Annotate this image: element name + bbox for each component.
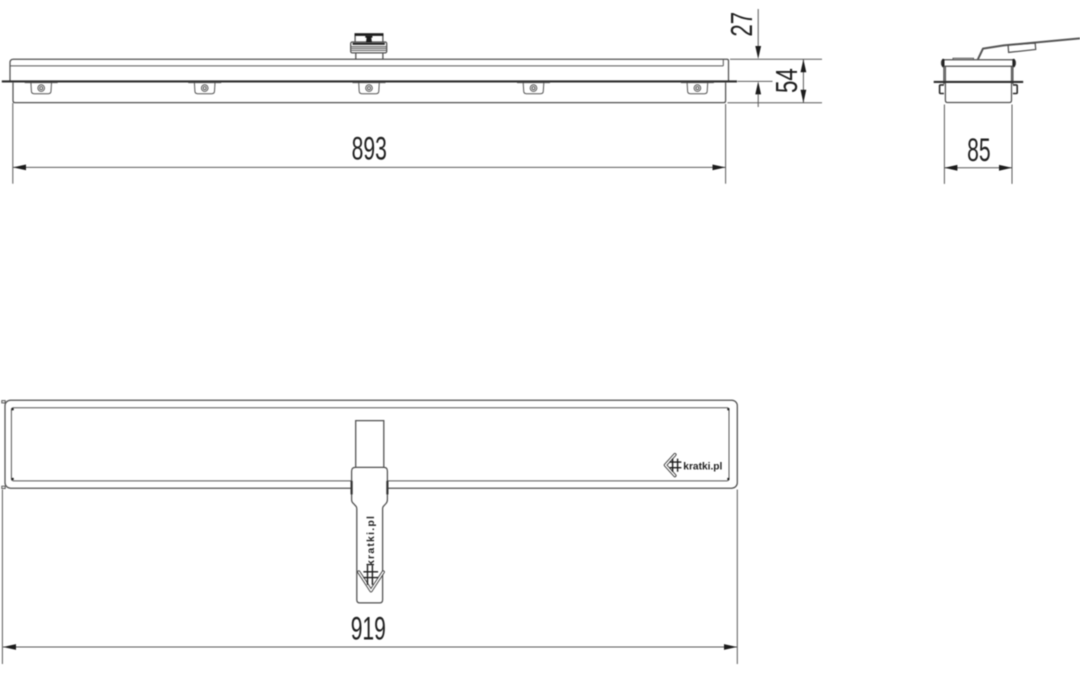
svg-text:893: 893 — [352, 130, 387, 167]
svg-text:27: 27 — [724, 12, 758, 37]
svg-text:kratki.pl: kratki.pl — [365, 515, 377, 566]
svg-text:85: 85 — [967, 131, 990, 168]
svg-text:kratki.pl: kratki.pl — [683, 461, 722, 472]
svg-text:919: 919 — [351, 610, 386, 647]
svg-text:54: 54 — [769, 68, 803, 93]
